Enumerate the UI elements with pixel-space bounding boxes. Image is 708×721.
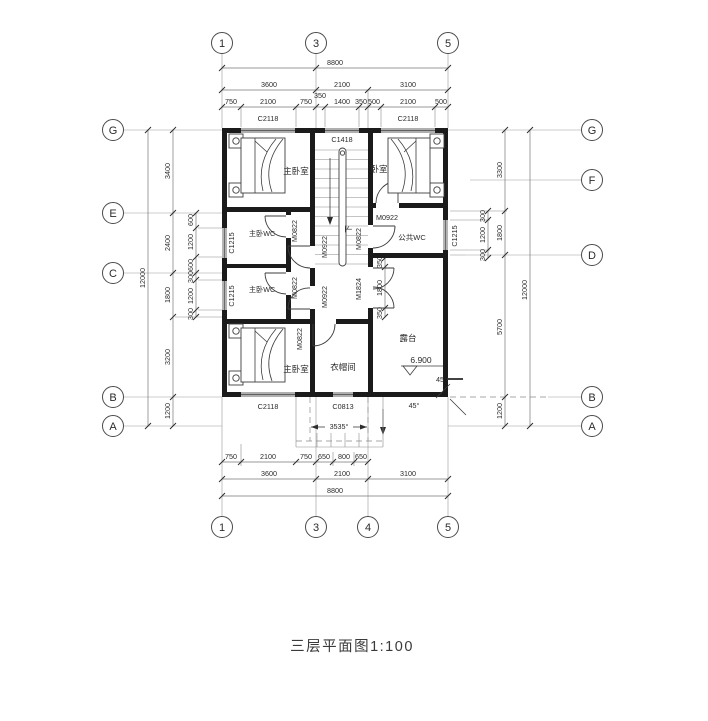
dim: 500 bbox=[368, 97, 380, 106]
window-label: C2118 bbox=[398, 114, 419, 123]
angle-label-bottom: 45° bbox=[409, 401, 420, 410]
window-label: C2118 bbox=[258, 402, 279, 411]
dim: 350 bbox=[375, 307, 384, 319]
grid-bubble: A bbox=[109, 421, 117, 433]
room-label-master-bedroom-top: 主卧室 bbox=[283, 166, 309, 176]
dim-left-total: 12000 bbox=[138, 268, 147, 288]
dim: 3600 bbox=[261, 469, 277, 478]
window-c1215-right bbox=[444, 220, 447, 250]
window-c1418 bbox=[325, 129, 359, 132]
dim: 350 bbox=[355, 97, 367, 106]
dim: 800 bbox=[338, 452, 350, 461]
grid-bubble: 5 bbox=[445, 522, 451, 534]
window-label: C0813 bbox=[332, 402, 353, 411]
dim: 750 bbox=[300, 97, 312, 106]
door-label: M0822 bbox=[354, 228, 363, 250]
dim: 3400 bbox=[163, 163, 172, 179]
dim: 2100 bbox=[260, 452, 276, 461]
room-label-master-wc-2: 主卧WC bbox=[249, 285, 275, 294]
floor-plan-drawing: 8800 3600 2100 3100 750 2100 750 350 140… bbox=[0, 0, 708, 721]
grid-bubble: 5 bbox=[445, 38, 451, 50]
window-label: C1215 bbox=[227, 285, 236, 306]
dim: 500 bbox=[435, 97, 447, 106]
drawing-caption: 三层平面图1:100 bbox=[290, 639, 414, 655]
window-c1215-left-1 bbox=[223, 228, 226, 258]
left-arrow-icon bbox=[311, 425, 318, 430]
furniture bbox=[229, 134, 444, 385]
grid-bubble: C bbox=[109, 268, 117, 280]
window-label: C2118 bbox=[258, 114, 279, 123]
bed-top-right bbox=[388, 134, 444, 197]
door-label: M0822 bbox=[290, 220, 299, 242]
door-label: M0922 bbox=[320, 286, 329, 308]
room-label-public-wc: 公共WC bbox=[398, 233, 426, 242]
dim: 600 bbox=[186, 259, 195, 271]
dim: 300 bbox=[186, 308, 195, 320]
dim: 350 bbox=[314, 91, 326, 100]
room-label-cloakroom: 衣帽间 bbox=[330, 362, 356, 372]
window-c2118-top-right bbox=[381, 129, 435, 132]
grid-bubble: D bbox=[588, 250, 596, 262]
door-m0822-public-wc bbox=[373, 226, 395, 248]
window-c2118-top-left bbox=[241, 129, 295, 132]
dim: 300 bbox=[478, 210, 487, 222]
dim: 5700 bbox=[495, 319, 504, 335]
stair-arrow-icon bbox=[327, 217, 333, 225]
dim: 1400 bbox=[334, 97, 350, 106]
dim-top-total: 8800 bbox=[327, 58, 343, 67]
dim: 3200 bbox=[163, 349, 172, 365]
dim: 2100 bbox=[334, 80, 350, 89]
window-c1215-left-2 bbox=[223, 281, 226, 310]
grid-bubble: 3 bbox=[313, 38, 319, 50]
dim: 1800 bbox=[163, 287, 172, 303]
window-c2118-bottom bbox=[241, 393, 295, 396]
dim: 1200 bbox=[495, 403, 504, 419]
dim: 750 bbox=[300, 452, 312, 461]
dim: 1800 bbox=[495, 225, 504, 241]
dim: 300 bbox=[478, 249, 487, 261]
elevation-value: 6.900 bbox=[410, 355, 432, 365]
stair-down-label: 下 bbox=[344, 225, 353, 233]
dim: 2100 bbox=[334, 469, 350, 478]
room-label-master-bedroom-bottom: 主卧室 bbox=[283, 364, 309, 374]
dim: 2100 bbox=[260, 97, 276, 106]
elevation-marker-icon bbox=[403, 366, 417, 375]
room-label-terrace: 露台 bbox=[399, 333, 416, 343]
dim: 650 bbox=[318, 452, 330, 461]
grid-bubble: E bbox=[109, 208, 116, 220]
right-arrow-icon bbox=[360, 425, 367, 430]
door-m0922-hall-1 bbox=[288, 246, 310, 268]
grid-bubble: F bbox=[589, 175, 596, 187]
room-label-master-wc-1: 主卧WC bbox=[249, 229, 275, 238]
grid-bubble: 4 bbox=[365, 522, 371, 534]
door-label: M0822 bbox=[295, 328, 304, 350]
dim: 1200 bbox=[186, 288, 195, 304]
dim: 3600 bbox=[261, 80, 277, 89]
angle-label-right: 45 bbox=[436, 375, 444, 384]
dim: 3100 bbox=[400, 469, 416, 478]
dim-right-total: 12000 bbox=[520, 280, 529, 300]
door-m0822-cloakroom bbox=[313, 324, 335, 346]
bed-bottom-left bbox=[229, 324, 285, 385]
window-c0813 bbox=[333, 393, 353, 396]
grid-bubble: B bbox=[588, 392, 595, 404]
dim: 3300 bbox=[495, 162, 504, 178]
dim: 650 bbox=[355, 452, 367, 461]
dim: 300 bbox=[186, 271, 195, 283]
dim: 750 bbox=[225, 97, 237, 106]
dim: 2400 bbox=[163, 235, 172, 251]
bed-top-left bbox=[229, 134, 285, 197]
dim: 1200 bbox=[186, 234, 195, 250]
dim: 750 bbox=[225, 452, 237, 461]
room-label-bedroom: 卧室 bbox=[370, 164, 388, 174]
window-label: C1215 bbox=[227, 232, 236, 253]
dim: 3100 bbox=[400, 80, 416, 89]
grid-lines bbox=[123, 53, 582, 517]
grid-bubble: A bbox=[588, 421, 596, 433]
dim: 1200 bbox=[163, 403, 172, 419]
floor-plan-sheet: 8800 3600 2100 3100 750 2100 750 350 140… bbox=[0, 0, 708, 721]
grid-bubble: G bbox=[588, 125, 597, 137]
door-label: M0822 bbox=[290, 277, 299, 299]
dim-bottom-total: 8800 bbox=[327, 486, 343, 495]
window-label: C1418 bbox=[331, 135, 352, 144]
grid-bubble: 1 bbox=[219, 522, 225, 534]
grid-bubble: B bbox=[109, 392, 116, 404]
door-label: M0922 bbox=[376, 213, 398, 222]
dim: 1200 bbox=[478, 227, 487, 243]
dim: 600 bbox=[186, 214, 195, 226]
door-label: M1824 bbox=[354, 278, 363, 300]
dim: 2100 bbox=[400, 97, 416, 106]
grid-bubble: 3 bbox=[313, 522, 319, 534]
grid-bubble: 1 bbox=[219, 38, 225, 50]
stair-railing bbox=[339, 148, 346, 266]
porch-span-label: 3535° bbox=[330, 422, 349, 431]
window-label: C1215 bbox=[450, 225, 459, 246]
grid-bubble: G bbox=[109, 125, 118, 137]
